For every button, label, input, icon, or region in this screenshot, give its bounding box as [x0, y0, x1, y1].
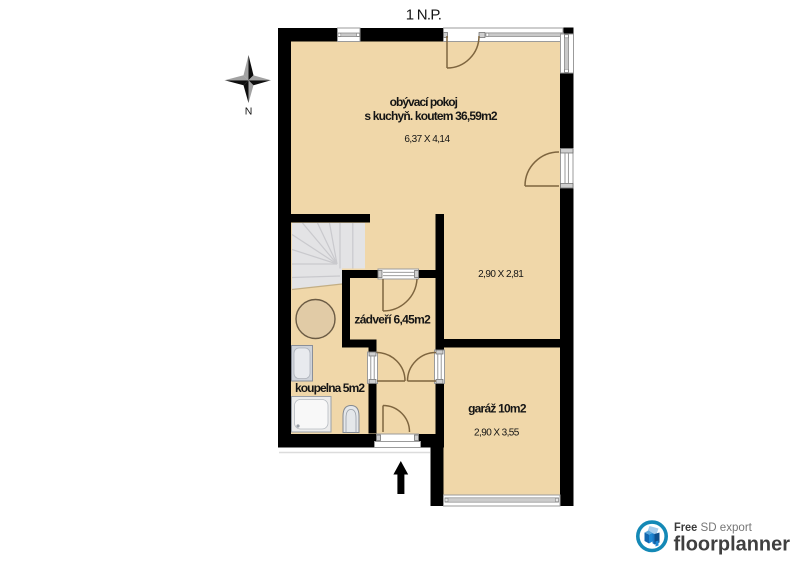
- svg-text:s kuchyň. koutem 36,59m2: s kuchyň. koutem 36,59m2: [364, 109, 498, 123]
- svg-text:koupelna 5m2: koupelna 5m2: [295, 381, 365, 395]
- svg-text:floorplanner: floorplanner: [674, 533, 791, 556]
- svg-text:zádveří 6,45m2: zádveří 6,45m2: [354, 312, 431, 326]
- svg-text:2,90 X 2,81: 2,90 X 2,81: [478, 269, 524, 280]
- svg-text:obývací pokoj: obývací pokoj: [390, 95, 458, 109]
- svg-text:garáž 10m2: garáž 10m2: [468, 401, 527, 415]
- svg-text:2,90 X 3,55: 2,90 X 3,55: [474, 427, 520, 438]
- svg-text:N: N: [245, 106, 253, 118]
- svg-text:6,37 X 4,14: 6,37 X 4,14: [404, 134, 450, 145]
- svg-text:1 N.P.: 1 N.P.: [406, 7, 442, 24]
